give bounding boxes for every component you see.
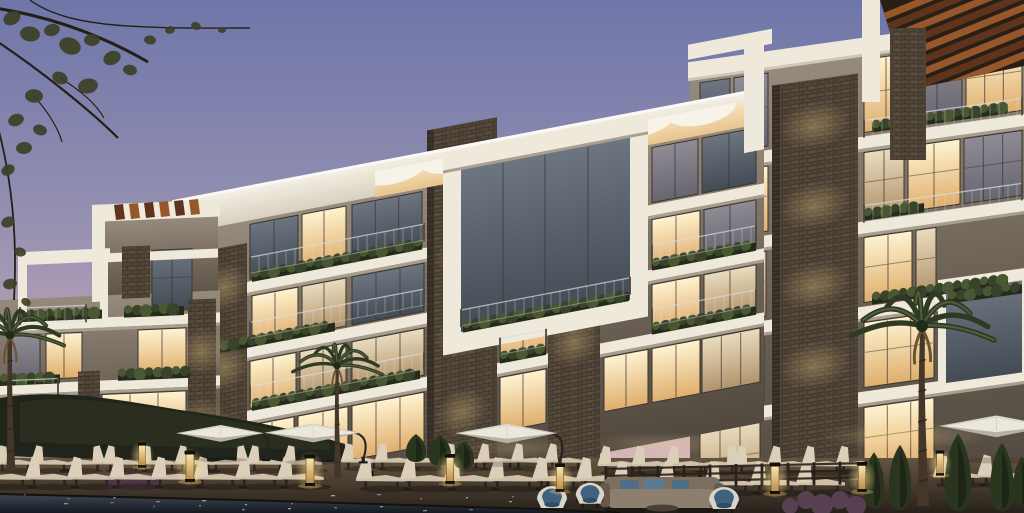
bollard-light	[848, 459, 877, 497]
water-sparkle	[291, 503, 293, 504]
water-sparkle	[509, 501, 512, 502]
water-sparkle	[156, 501, 160, 502]
balcony-box-frame	[443, 149, 461, 355]
outdoor-sofa	[600, 477, 724, 513]
balcony-box-frame	[630, 113, 648, 319]
water-sparkle	[202, 500, 206, 501]
water-sparkle	[110, 502, 114, 503]
architectural-rendering	[0, 0, 1024, 513]
water-sparkle	[199, 505, 201, 506]
water-sparkle	[113, 497, 116, 498]
water-sparkle	[331, 495, 335, 496]
bollard-light	[436, 451, 465, 489]
bollard-light	[928, 448, 952, 480]
bollard-light	[547, 460, 574, 496]
water-sparkle	[153, 506, 155, 507]
pier-shade	[772, 84, 780, 491]
water-sparkle	[245, 504, 247, 505]
water-sparkle	[288, 508, 291, 509]
rendering-stage	[0, 0, 1024, 513]
bollard-light	[295, 451, 325, 491]
water-sparkle	[64, 503, 68, 504]
bollard-light	[175, 447, 205, 487]
window-soft	[702, 328, 760, 393]
stone-pier	[122, 245, 150, 298]
coffee-table-top	[646, 505, 678, 512]
water-sparkle	[242, 509, 245, 510]
water-sparkle	[380, 506, 383, 507]
water-sparkle	[334, 507, 337, 508]
water-sparkle	[466, 497, 468, 498]
pergola-beam	[862, 0, 880, 102]
water-sparkle	[469, 509, 473, 510]
water-sparkle	[67, 498, 70, 499]
stone-pier	[890, 28, 926, 160]
ground-glow	[590, 432, 730, 456]
water-sparkle	[512, 496, 514, 497]
portal-column	[744, 44, 764, 153]
bollard-light	[130, 440, 154, 472]
bollard-light	[760, 459, 790, 499]
water-sparkle	[377, 494, 381, 495]
water-sparkle	[420, 498, 422, 499]
water-sparkle	[423, 510, 427, 511]
water-sparkle	[24, 494, 26, 495]
